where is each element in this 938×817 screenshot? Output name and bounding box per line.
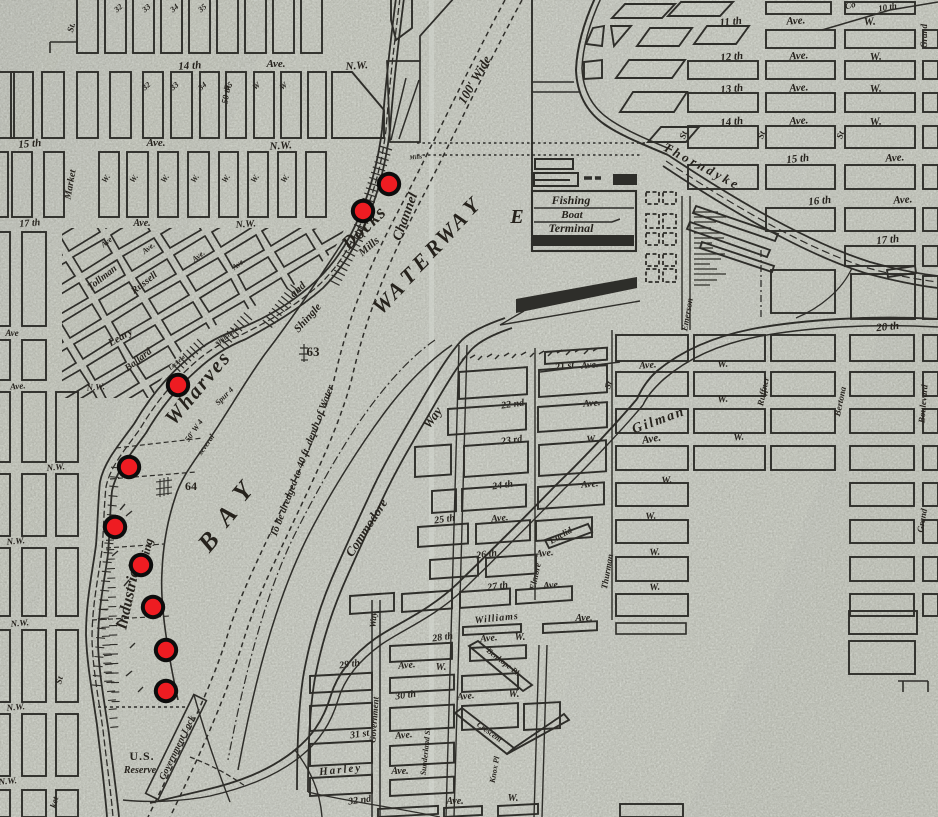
svg-text:N.W.: N.W. [85,381,105,393]
svg-text:Ave.: Ave. [638,359,657,372]
svg-text:W.: W. [717,394,729,406]
svg-text:Ave.: Ave. [884,151,905,164]
svg-text:Ave.: Ave. [542,579,561,592]
svg-text:Reserve: Reserve [123,765,157,776]
svg-text:W.: W. [586,433,598,445]
svg-text:63: 63 [307,344,321,359]
svg-text:Ave.: Ave. [892,193,913,206]
svg-text:20 th: 20 th [875,320,900,334]
svg-text:11 th: 11 th [719,15,742,29]
svg-text:W.: W. [661,475,673,487]
svg-text:Mills: Mills [408,154,423,161]
svg-text:Ave.: Ave. [265,58,285,70]
svg-text:15 th: 15 th [786,152,810,166]
svg-text:Ave.: Ave. [785,14,806,27]
svg-text:17 th: 17 th [19,217,41,230]
svg-text:N.W.: N.W. [268,139,292,153]
svg-text:Boat: Boat [560,209,583,221]
svg-text:64: 64 [185,479,197,493]
svg-text:N.W.: N.W. [5,701,25,713]
svg-text:Ave.: Ave. [132,218,150,229]
svg-text:N.W.: N.W. [0,775,17,787]
svg-text:Way: Way [367,611,378,628]
svg-text:W.: W. [436,662,447,673]
svg-text:W.: W. [733,432,745,444]
svg-text:W.: W. [645,511,657,523]
svg-text:Ave.: Ave. [535,547,554,560]
svg-text:N.W.: N.W. [5,535,25,547]
svg-text:N.W.: N.W. [234,218,256,230]
svg-text:13 th: 13 th [720,82,744,96]
svg-text:Ave.: Ave. [445,796,463,807]
svg-text:15 th: 15 th [18,137,42,151]
svg-text:W.: W. [864,16,877,29]
svg-text:W.: W. [508,793,519,804]
svg-text:Fishing: Fishing [551,193,591,207]
svg-text:N.W.: N.W. [9,617,29,629]
svg-text:Ave: Ave [4,328,18,338]
svg-text:14 th: 14 th [720,115,744,129]
svg-text:E: E [509,206,523,228]
svg-text:N.W.: N.W. [45,461,65,473]
svg-text:W.: W. [509,689,520,700]
svg-text:U.S.: U.S. [129,749,154,763]
svg-text:Grand: Grand [919,24,929,49]
svg-text:W.: W. [717,359,729,371]
svg-text:16 th: 16 th [808,194,832,208]
svg-text:Terminal: Terminal [549,221,595,235]
svg-text:14 th: 14 th [178,59,202,73]
svg-text:W.: W. [649,582,661,594]
svg-text:Ave.: Ave. [145,137,165,149]
svg-text:Ave.: Ave. [390,766,408,777]
svg-text:17 th: 17 th [876,233,900,247]
svg-text:N.W.: N.W. [344,59,368,73]
svg-text:W.: W. [649,547,661,559]
svg-text:12 th: 12 th [720,50,744,64]
svg-text:Ave.: Ave. [9,380,26,391]
svg-text:W.: W. [515,632,526,643]
